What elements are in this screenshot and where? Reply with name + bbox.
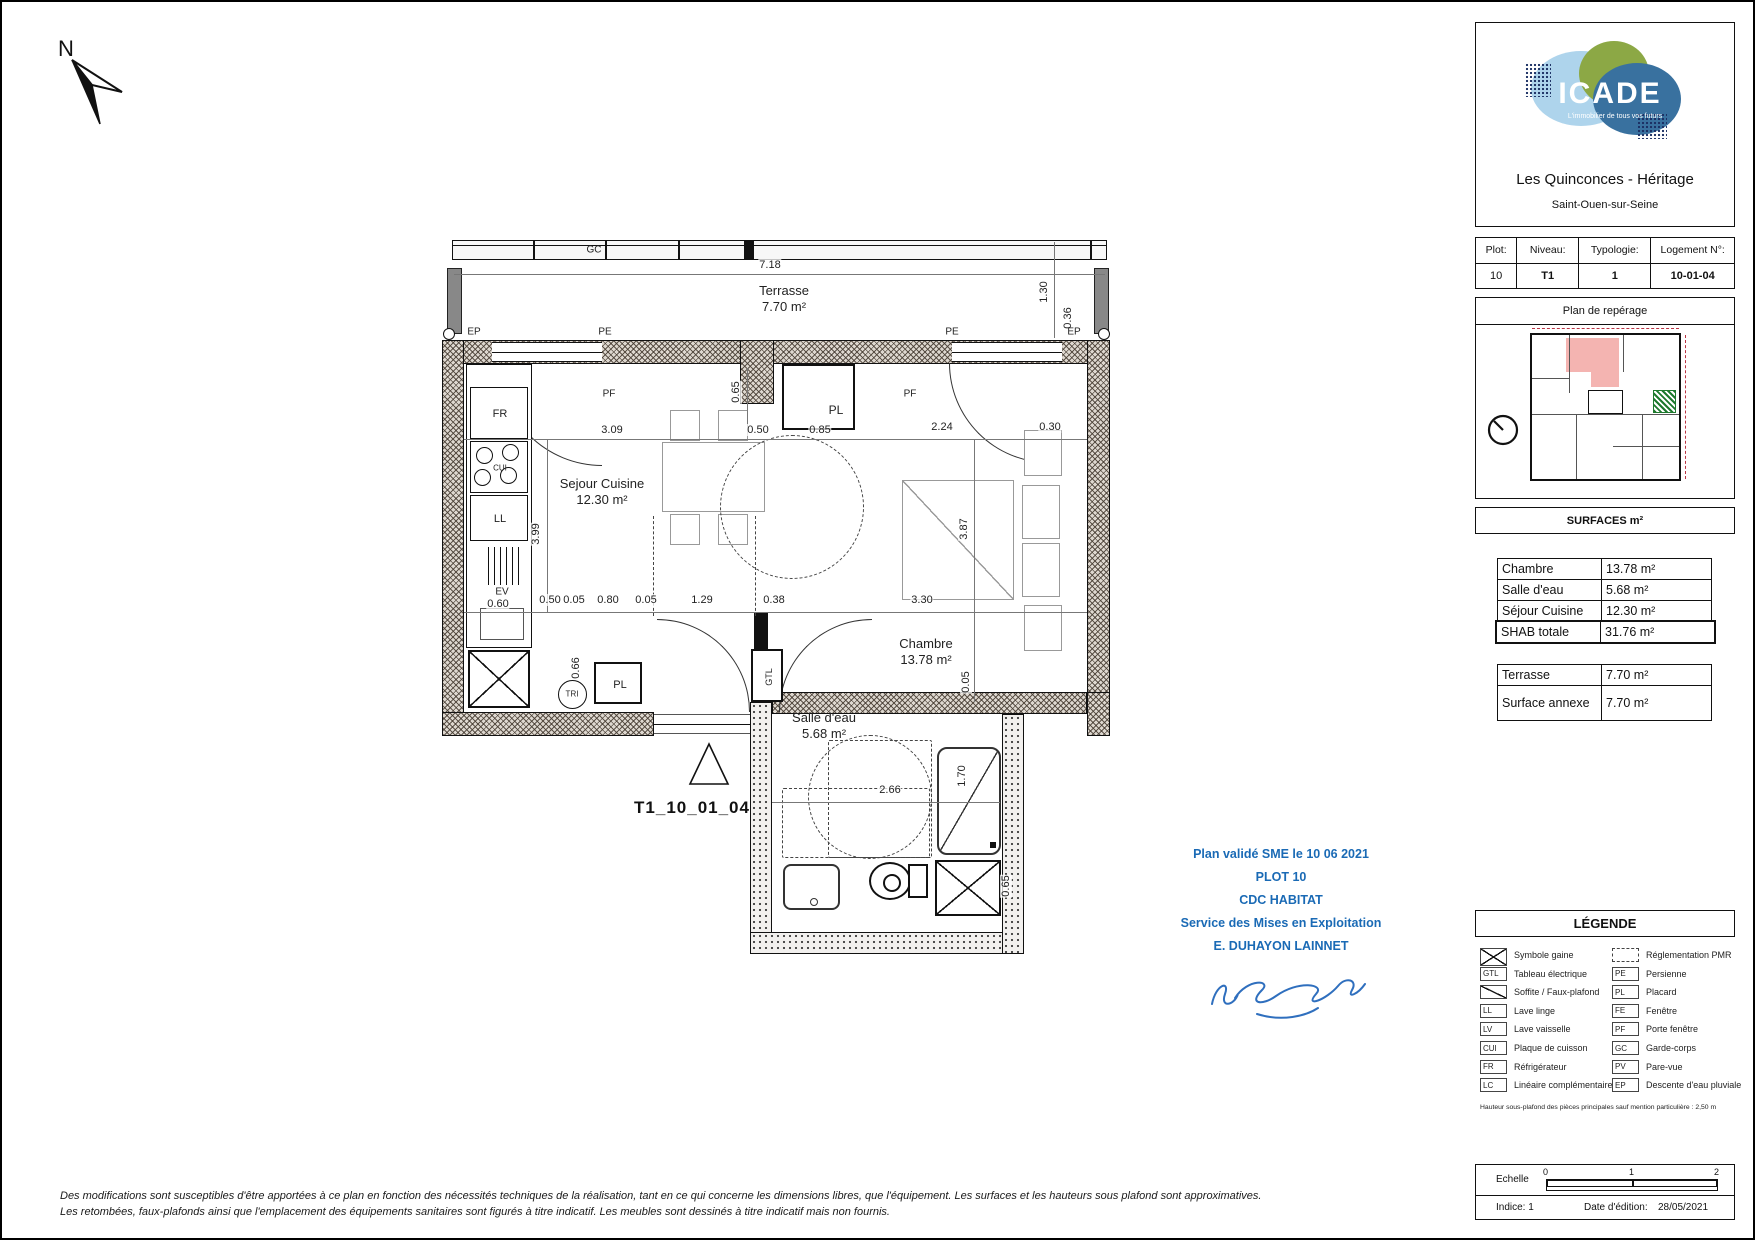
legend-symbol-GTL: GTL: [1480, 967, 1507, 981]
project-title: Les Quinconces - Héritage: [1476, 171, 1734, 188]
surfaces-title: SURFACES m²: [1567, 515, 1643, 527]
legend-symbol-GC: GC: [1612, 1041, 1639, 1055]
placard-label: PL: [829, 403, 844, 417]
reperage-miniplan: [1530, 333, 1681, 481]
legend-label: Placard: [1646, 987, 1677, 997]
plan-sheet: N FR CUI LL EV TRI PL GTL: [0, 0, 1755, 1240]
legend-symbol-dash: [1612, 948, 1639, 962]
door-arc: [657, 619, 750, 712]
gtl-panel: GTL: [751, 649, 783, 702]
surface-value: 5.68 m²: [1602, 580, 1711, 600]
dimension-label: 3.09: [600, 424, 623, 436]
tri-label: TRI: [566, 690, 579, 699]
dimension-label: 0.05: [634, 594, 657, 606]
wall-stub: [754, 612, 768, 652]
surface-name: Salle d'eau: [1498, 580, 1602, 600]
surface-name: Terrasse: [1498, 665, 1602, 685]
shelf: [1024, 430, 1062, 476]
window-pf-left: [492, 342, 602, 362]
dimension-label: 0.80: [596, 594, 619, 606]
dimension-label: 1.70: [956, 764, 968, 787]
annexe-table: Terrasse7.70 m²Surface annexe7.70 m²: [1497, 664, 1712, 721]
washing-machine: LL: [470, 495, 528, 541]
surfaces-table: Chambre13.78 m²Salle d'eau5.68 m²Séjour …: [1497, 558, 1712, 622]
pf-label: PF: [603, 389, 616, 400]
fridge-label: FR: [493, 408, 508, 420]
legend-label: Pare-vue: [1646, 1062, 1683, 1072]
placard-label: PL: [613, 679, 626, 691]
washbasin: [783, 864, 840, 910]
room-name: Terrasse: [759, 283, 809, 299]
legend-symbol-EP: EP: [1612, 1078, 1639, 1092]
legend-label: Fenêtre: [1646, 1006, 1677, 1016]
legend-symbol-PF: PF: [1612, 1022, 1639, 1036]
dimension-label: 0.85: [808, 424, 831, 436]
room-area: 7.70 m²: [759, 299, 809, 315]
legend-symbol-LC: LC: [1480, 1078, 1507, 1092]
room-label: Terrasse7.70 m²: [759, 283, 809, 315]
legend-symbol-LL: LL: [1480, 1004, 1507, 1018]
info-value-logement: 10-01-04: [1651, 264, 1734, 289]
burner-icon: [502, 444, 519, 461]
dimension-label: 0.05: [562, 594, 585, 606]
room-label: Salle d'eau5.68 m²: [792, 710, 856, 742]
door-arc: [779, 619, 872, 712]
ep-downspout-icon: [1098, 328, 1110, 340]
sink-label: EV: [495, 587, 508, 598]
dimension-label: 3.99: [530, 522, 542, 545]
info-header: Logement N°:: [1651, 238, 1734, 263]
dimension-label: 0.65: [730, 380, 742, 403]
nightstand: [1022, 485, 1060, 539]
edition-date: 28/05/2021: [1658, 1202, 1708, 1213]
chair: [718, 410, 748, 441]
gtl-label: GTL: [764, 668, 774, 686]
info-header: Typologie:: [1579, 238, 1651, 263]
surface-name: Chambre: [1498, 559, 1602, 579]
gaine-box: [468, 650, 530, 708]
shower: [937, 747, 1001, 855]
sink: [488, 547, 522, 585]
room-label: Sejour Cuisine12.30 m²: [560, 476, 645, 508]
room-name: Salle d'eau: [792, 710, 856, 726]
dimension-label: 0.50: [746, 424, 769, 436]
room-area: 5.68 m²: [792, 726, 856, 742]
scale-bar-outline: [1546, 1186, 1718, 1191]
legend-title: LÉGENDE: [1574, 916, 1637, 931]
dimension-label: 2.24: [930, 421, 953, 433]
cooktop-label: CUI: [493, 464, 507, 473]
stamp-line: PLOT 10: [1140, 870, 1422, 884]
unit-info-table: Plot: Niveau: Typologie: Logement N°: 10…: [1475, 237, 1735, 289]
gaine-box: [935, 860, 1001, 916]
room-name: Sejour Cuisine: [560, 476, 645, 492]
scale-tick-0: 0: [1543, 1167, 1548, 1177]
shab-total-row: SHAB totale31.76 m²: [1495, 620, 1716, 644]
room-name: Chambre: [899, 636, 952, 652]
scale-tick-2: 2: [1714, 1167, 1719, 1177]
terrace-guardrail: [452, 240, 1107, 260]
room-area: 12.30 m²: [560, 492, 645, 508]
dimension-label: 2.66: [878, 784, 901, 796]
pf-label: PF: [904, 389, 917, 400]
legend-symbol-PV: PV: [1612, 1060, 1639, 1074]
terrace-side-rail: [447, 268, 462, 334]
validation-stamp: Plan validé SME le 10 06 2021PLOT 10CDC …: [1140, 847, 1422, 962]
table-row: SHAB totale31.76 m²: [1497, 622, 1714, 642]
info-value-plot: 10: [1476, 264, 1517, 289]
stamp-line: CDC HABITAT: [1140, 893, 1422, 907]
toilet-tank: [908, 864, 928, 898]
info-header: Niveau:: [1517, 238, 1579, 263]
surface-value: 7.70 m²: [1602, 686, 1711, 720]
fridge: FR: [470, 387, 528, 439]
north-arrow-icon: N: [50, 30, 140, 130]
legend-label: Réglementation PMR: [1646, 950, 1732, 960]
pe-label: PE: [598, 327, 611, 338]
legend-label: Symbole gaine: [1514, 950, 1574, 960]
chair: [670, 410, 700, 441]
burner-icon: [476, 447, 493, 464]
legend-label: Tableau électrique: [1514, 969, 1587, 979]
top-placard: PL: [782, 364, 855, 430]
toilet: [869, 862, 911, 900]
legend-symbol-CUI: CUI: [1480, 1041, 1507, 1055]
indice-label: Indice: 1: [1496, 1202, 1534, 1213]
ep-label: EP: [1067, 327, 1080, 338]
reperage-title: Plan de repérage: [1476, 298, 1734, 325]
burner-icon: [474, 469, 491, 486]
core: [1588, 390, 1623, 414]
scale-box: Echelle 0 1 2 Indice: 1 Date d'édition: …: [1475, 1164, 1735, 1220]
wall-left: [442, 340, 464, 736]
room-label: Chambre13.78 m²: [899, 636, 952, 668]
dimension-label: 0.66: [570, 656, 582, 679]
washing-machine-label: LL: [494, 513, 506, 525]
dimension-label: 0.30: [1038, 421, 1061, 433]
surface-name: Séjour Cuisine: [1498, 601, 1602, 621]
disclaimer-line: Des modifications sont susceptibles d'êt…: [60, 1188, 1310, 1204]
wall-corner-se: [1087, 692, 1110, 736]
legend-symbol-x: [1480, 948, 1507, 966]
dimension-label: 0.50: [538, 594, 561, 606]
surface-value: 12.30 m²: [1602, 601, 1711, 621]
north-label: N: [58, 36, 74, 61]
dimension-label: 0.38: [762, 594, 785, 606]
legend-label: Réfrigérateur: [1514, 1062, 1567, 1072]
ep-downspout-icon: [443, 328, 455, 340]
highlighted-unit: [1566, 338, 1619, 373]
terrace-side-rail: [1094, 268, 1109, 334]
scale-tick-1: 1: [1629, 1167, 1634, 1177]
legend-label: Garde-corps: [1646, 1043, 1696, 1053]
surfaces-header: SURFACES m²: [1475, 507, 1735, 534]
wall-pillar-mid: [740, 340, 774, 404]
surface-value: 31.76 m²: [1601, 622, 1714, 642]
triangle-symbol: [688, 740, 730, 788]
stamp-line: E. DUHAYON LAINNET: [1140, 939, 1422, 953]
scale-label: Echelle: [1496, 1174, 1529, 1185]
surface-value: 13.78 m²: [1602, 559, 1711, 579]
legend-label: Persienne: [1646, 969, 1687, 979]
legend-label: Plaque de cuisson: [1514, 1043, 1588, 1053]
legend-label: Porte fenêtre: [1646, 1024, 1698, 1034]
legend-symbol-FR: FR: [1480, 1060, 1507, 1074]
table-row: Chambre13.78 m²: [1498, 559, 1711, 579]
unit-label: T1_10_01_04: [634, 798, 750, 818]
entry-placard: PL: [594, 662, 642, 704]
legend-label: Descente d'eau pluviale: [1646, 1080, 1741, 1090]
info-header: Plot:: [1476, 238, 1517, 263]
title-block: ICADE L'immobilier de tous vos futurs Le…: [1475, 22, 1735, 227]
dimension-label: 1.30: [1038, 280, 1050, 303]
signature: [1202, 964, 1372, 1024]
legend-symbol-LV: LV: [1480, 1022, 1507, 1036]
cooktop: CUI: [470, 441, 528, 493]
dimension-label: 0.60: [486, 598, 509, 610]
tri-symbol: TRI: [558, 680, 587, 709]
dimension-label: 0.65: [1000, 874, 1012, 897]
disclaimer: Des modifications sont susceptibles d'êt…: [60, 1188, 1310, 1220]
dimension-label: 3.87: [958, 517, 970, 540]
highlighted-unit-tab: [1591, 372, 1619, 386]
wall-right-chambre: [1087, 340, 1110, 714]
stamp-line: Service des Mises en Exploitation: [1140, 916, 1422, 930]
legend-symbol-slash: [1480, 985, 1507, 999]
table-row: Terrasse7.70 m²: [1498, 665, 1711, 685]
surface-name: SHAB totale: [1497, 622, 1601, 642]
wall-sde-right: [1002, 714, 1024, 954]
orientation-clock-icon: [1486, 413, 1520, 447]
pe-label: PE: [945, 327, 958, 338]
icade-logo: ICADE L'immobilier de tous vos futurs: [1531, 41, 1681, 151]
project-city: Saint-Ouen-sur-Seine: [1476, 199, 1734, 211]
pmr-turning-circle: [720, 435, 864, 579]
dimension-label: 7.18: [758, 259, 781, 271]
ep-label: EP: [467, 327, 480, 338]
legend-label: Lave vaisselle: [1514, 1024, 1571, 1034]
room-area: 13.78 m²: [899, 652, 952, 668]
nightstand: [1022, 543, 1060, 597]
stamp-line: Plan validé SME le 10 06 2021: [1140, 847, 1422, 861]
chair: [670, 514, 700, 545]
reperage-box: Plan de repérage: [1475, 297, 1735, 499]
guardrail-joint: [744, 240, 754, 260]
table-row: Salle d'eau5.68 m²: [1498, 579, 1711, 600]
table-row: Surface annexe7.70 m²: [1498, 685, 1711, 720]
shower-drain: [990, 842, 996, 848]
icade-logo-text: ICADE: [1545, 77, 1675, 111]
window-pf-right: [952, 342, 1062, 362]
surface-value: 7.70 m²: [1602, 665, 1711, 685]
icade-logo-tagline: L'immobilier de tous vos futurs: [1555, 113, 1675, 120]
pmr-zone-rect: [782, 788, 930, 858]
wall-sde-left: [750, 702, 772, 954]
wall-sde-bottom: [750, 932, 1024, 954]
legend-footnote: Hauteur sous-plafond des pièces principa…: [1480, 1104, 1716, 1111]
legend-symbol-FE: FE: [1612, 1004, 1639, 1018]
legend-header: LÉGENDE: [1475, 910, 1735, 937]
wall-bottom-entry: [442, 712, 654, 736]
legend-symbol-PE: PE: [1612, 967, 1639, 981]
surface-name: Surface annexe: [1498, 686, 1602, 720]
pmr-zone-line: [755, 516, 756, 616]
stairwell: [1653, 390, 1676, 414]
legend-label: Linéaire complémentaire: [1514, 1080, 1613, 1090]
info-value-typologie: 1: [1579, 264, 1651, 289]
legend-label: Lave linge: [1514, 1006, 1555, 1016]
table-row: Séjour Cuisine12.30 m²: [1498, 600, 1711, 621]
entry-door-opening: [654, 714, 750, 734]
edition-label: Date d'édition:: [1584, 1202, 1648, 1213]
legend-label: Soffite / Faux-plafond: [1514, 987, 1599, 997]
dimension-label: 3.30: [910, 594, 933, 606]
legend-symbol-PL: PL: [1612, 985, 1639, 999]
disclaimer-line: Les retombées, faux-plafonds ainsi que l…: [60, 1204, 1310, 1220]
gc-label: GC: [587, 245, 602, 256]
info-value-niveau: T1: [1517, 264, 1579, 289]
dimension-label: 0.05: [960, 670, 972, 693]
dimension-label: 1.29: [690, 594, 713, 606]
